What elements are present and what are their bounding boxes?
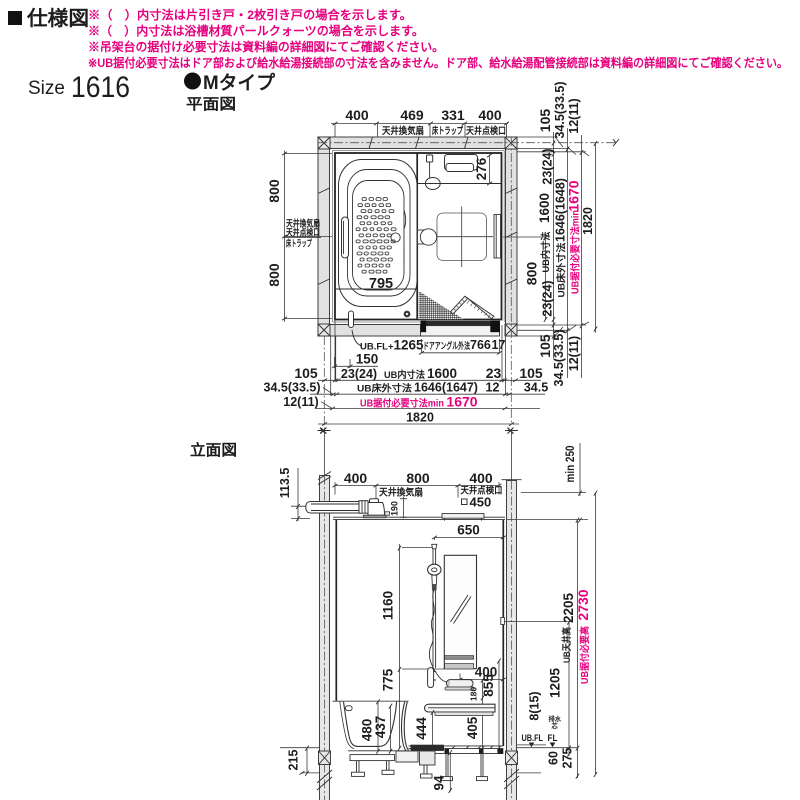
svg-text:仕様図: 仕様図: [26, 6, 89, 30]
svg-text:UB天井高: UB天井高: [561, 627, 573, 663]
svg-text:113.5: 113.5: [278, 468, 292, 499]
svg-text:150: 150: [356, 352, 379, 367]
svg-text:94: 94: [432, 775, 447, 791]
svg-text:12(11): 12(11): [567, 336, 581, 371]
svg-text:Mタイプ: Mタイプ: [203, 71, 276, 94]
svg-text:床トラップ: 床トラップ: [432, 125, 463, 137]
svg-text:天井換気扇: 天井換気扇: [382, 125, 424, 137]
svg-text:34.5(33.5): 34.5(33.5): [553, 82, 567, 139]
svg-text:1670: 1670: [446, 393, 477, 409]
svg-text:215: 215: [287, 750, 301, 771]
svg-text:23(24): 23(24): [341, 367, 377, 381]
svg-text:UB床外寸法: UB床外寸法: [357, 383, 413, 395]
svg-text:2205: 2205: [561, 592, 576, 623]
svg-text:34.5(33.5): 34.5(33.5): [264, 381, 321, 395]
svg-text:34.5: 34.5: [524, 381, 548, 395]
svg-text:1616: 1616: [71, 71, 130, 104]
svg-text:800: 800: [266, 263, 282, 287]
svg-text:400: 400: [469, 470, 493, 486]
svg-text:1205: 1205: [548, 667, 563, 698]
svg-text:※吊架台の据付け必要寸法は資料編の詳細図にてご確認ください。: ※吊架台の据付け必要寸法は資料編の詳細図にてご確認ください。: [88, 39, 444, 54]
svg-text:23: 23: [486, 365, 502, 381]
svg-text:444: 444: [414, 717, 429, 740]
svg-text:天井点検口: 天井点検口: [466, 125, 506, 137]
svg-text:34.5(33.5): 34.5(33.5): [552, 330, 566, 387]
svg-text:800: 800: [266, 179, 282, 203]
svg-text:190: 190: [390, 501, 400, 516]
svg-text:405: 405: [465, 716, 480, 739]
svg-text:UB.FL: UB.FL: [522, 733, 544, 743]
svg-text:17: 17: [492, 338, 506, 352]
svg-text:400: 400: [478, 107, 502, 123]
svg-text:UB内寸法: UB内寸法: [540, 231, 552, 272]
svg-text:UB据付必要高: UB据付必要高: [578, 626, 591, 684]
svg-text:※UB据付必要寸法はドア部および給水給湯接続部の寸法を含みま: ※UB据付必要寸法はドア部および給水給湯接続部の寸法を含みません。ドア部、給水給…: [88, 55, 788, 70]
svg-text:650: 650: [457, 523, 480, 538]
svg-text:331: 331: [441, 107, 465, 123]
svg-text:12(11): 12(11): [567, 98, 581, 133]
svg-text:23(24): 23(24): [541, 148, 555, 184]
svg-text:※（ ）内寸法は浴槽材質パールクォーツの場合を示します。: ※（ ）内寸法は浴槽材質パールクォーツの場合を示します。: [88, 23, 424, 38]
svg-text:1160: 1160: [381, 591, 396, 620]
svg-text:23(24): 23(24): [541, 280, 555, 316]
svg-text:8(15): 8(15): [528, 691, 542, 720]
svg-text:排水: 排水: [549, 714, 562, 723]
svg-text:775: 775: [381, 668, 396, 691]
svg-text:400: 400: [344, 470, 368, 486]
svg-text:105: 105: [294, 365, 318, 381]
svg-text:469: 469: [400, 107, 424, 123]
svg-text:UB据付必要寸法min: UB据付必要寸法min: [569, 210, 582, 294]
svg-text:min 250: min 250: [563, 445, 577, 482]
svg-text:UB内寸法: UB内寸法: [384, 369, 425, 381]
svg-text:1600: 1600: [537, 193, 552, 223]
svg-text:12(11): 12(11): [283, 395, 318, 409]
svg-text:1600: 1600: [427, 366, 457, 381]
svg-text:855: 855: [481, 674, 496, 697]
svg-text:105: 105: [537, 334, 553, 358]
svg-text:180: 180: [469, 687, 479, 701]
svg-text:60: 60: [547, 751, 561, 765]
svg-text:天井点検口: 天井点検口: [286, 227, 320, 238]
svg-text:105: 105: [537, 109, 553, 133]
svg-text:Size: Size: [28, 78, 65, 99]
svg-text:FL: FL: [548, 733, 558, 743]
svg-text:床トラップ: 床トラップ: [286, 238, 312, 249]
svg-text:ドアアングル外法766: ドアアングル外法766: [423, 338, 491, 352]
svg-text:平面図: 平面図: [186, 96, 236, 113]
svg-text:795: 795: [369, 276, 393, 292]
svg-text:105: 105: [519, 365, 543, 381]
svg-text:芯: 芯: [552, 721, 559, 730]
svg-text:1670: 1670: [566, 180, 582, 211]
svg-text:1820: 1820: [406, 410, 434, 424]
svg-text:437: 437: [373, 716, 388, 739]
svg-text:800: 800: [524, 262, 540, 286]
svg-text:UB床外寸法: UB床外寸法: [556, 242, 568, 298]
svg-text:276: 276: [474, 157, 489, 180]
svg-text:※（ ）内寸法は片引き戸・2枚引き戸の場合を示します。: ※（ ）内寸法は片引き戸・2枚引き戸の場合を示します。: [88, 7, 412, 22]
svg-text:天井換気扇: 天井換気扇: [379, 486, 423, 498]
svg-text:400: 400: [345, 107, 369, 123]
svg-text:800: 800: [406, 470, 430, 486]
svg-text:450: 450: [470, 495, 492, 510]
svg-text:12: 12: [486, 381, 500, 395]
svg-text:立面図: 立面図: [190, 441, 237, 459]
svg-text:1820: 1820: [581, 207, 595, 235]
svg-text:UB据付必要寸法min: UB据付必要寸法min: [360, 396, 444, 409]
